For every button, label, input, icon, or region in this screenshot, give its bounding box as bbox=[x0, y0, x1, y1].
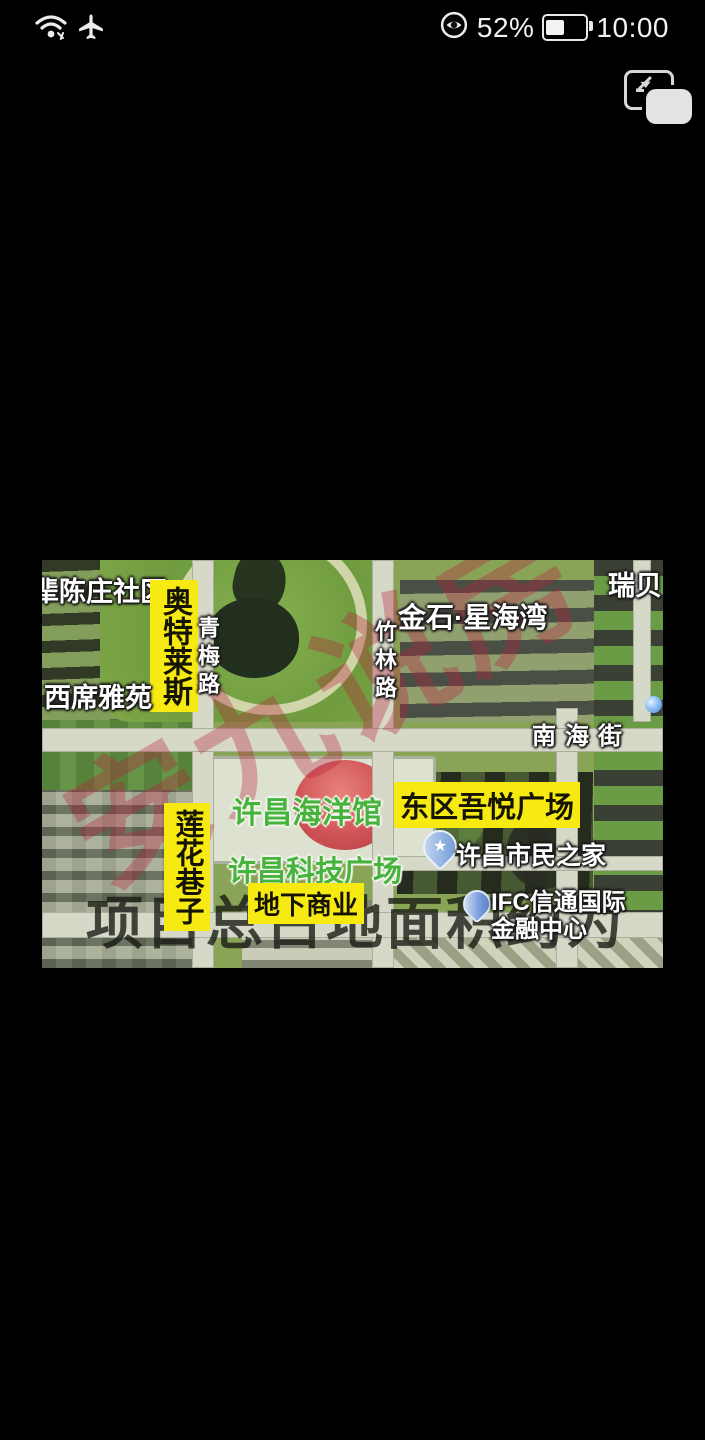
battery-icon bbox=[542, 14, 588, 41]
status-left-icons bbox=[34, 12, 106, 47]
battery-fill bbox=[546, 20, 564, 35]
label-underground-business: 地下商业 bbox=[248, 883, 364, 924]
label-jinshi-xinghaiwan: 金石·星海湾 bbox=[398, 596, 547, 636]
label-wuyue-plaza: 东区吾悦广场 bbox=[394, 782, 580, 828]
airplane-mode-icon bbox=[76, 12, 106, 47]
label-road-qingmei: 青梅路 bbox=[191, 616, 223, 700]
map-blue-marker bbox=[645, 696, 662, 713]
screenshot-card-icon bbox=[646, 89, 692, 124]
screenshot-thumbnail-button[interactable] bbox=[624, 70, 692, 126]
status-bar: 52% 10:00 bbox=[0, 0, 705, 54]
label-citizen-home: 许昌市民之家 bbox=[456, 836, 606, 872]
clock: 10:00 bbox=[596, 12, 669, 44]
label-ocean-hall: 许昌海洋馆 bbox=[232, 788, 382, 832]
label-ruibei: 瑞贝 bbox=[608, 564, 662, 603]
label-lianhua-lane: 莲花巷子 bbox=[164, 803, 210, 931]
label-road-nanhai: 南海街 bbox=[532, 716, 631, 751]
eye-comfort-icon bbox=[439, 10, 469, 45]
status-right-cluster: 52% 10:00 bbox=[439, 10, 669, 45]
label-community-topleft: 辈陈庄社区 bbox=[42, 570, 167, 609]
label-road-zhulin: 竹林路 bbox=[368, 620, 400, 704]
star-icon: ★ bbox=[433, 839, 447, 855]
label-xixi-yayuan: 西席雅苑 bbox=[44, 676, 152, 715]
label-ifc-line2: 金融中心 bbox=[491, 909, 587, 944]
battery-percent: 52% bbox=[477, 12, 535, 44]
wifi-icon bbox=[34, 13, 68, 46]
battery-nub bbox=[589, 21, 593, 31]
satellite-map[interactable]: 安九说房 项目总占地面积约为 辈陈庄社区 奥特莱斯 青梅路 西席雅苑 金石·星海… bbox=[42, 560, 663, 968]
